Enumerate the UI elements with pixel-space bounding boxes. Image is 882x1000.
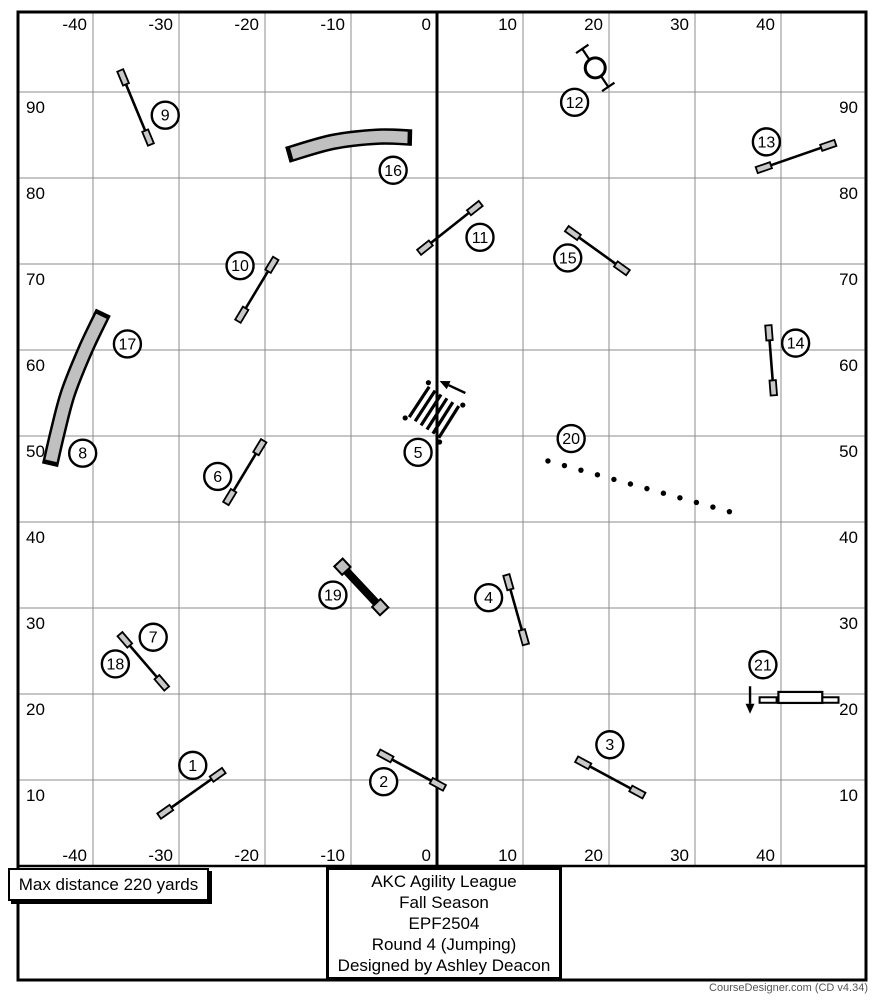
obstacle-number-text-15: 15 [559, 250, 577, 267]
obstacle-number-text-7: 7 [149, 630, 158, 647]
info-line-designer: Designed by Ashley Deacon [338, 955, 551, 976]
weave-pole [611, 477, 616, 482]
y-tick-right: 70 [839, 270, 858, 289]
obstacle-18-label-only: 18 [102, 650, 129, 677]
x-tick-top: -10 [320, 15, 345, 34]
obstacle-number-text-9: 9 [161, 108, 170, 125]
x-tick-bottom: 20 [584, 846, 603, 865]
x-tick-bottom: -20 [234, 846, 259, 865]
obstacle-17-tunnel: 17 [50, 312, 141, 465]
y-tick-left: 60 [26, 356, 45, 375]
obstacle-number-text-18: 18 [106, 656, 124, 673]
obstacle-1-jump: 1 [157, 752, 225, 819]
y-tick-left: 80 [26, 184, 45, 203]
x-tick-bottom: -40 [62, 846, 87, 865]
obstacle-number-text-10: 10 [231, 258, 249, 275]
obstacle-5-broad-jump: 5 [403, 380, 466, 466]
obstacle-number-text-5: 5 [414, 445, 423, 462]
x-tick-top: -20 [234, 15, 259, 34]
x-tick-bottom: 0 [422, 846, 431, 865]
panel-bar [342, 567, 380, 607]
weave-pole [710, 504, 715, 509]
obstacle-19-panel-jump: 19 [319, 559, 388, 616]
weave-pole [661, 491, 666, 496]
corner-pole [403, 415, 408, 420]
weave-pole [644, 486, 649, 491]
course-map: -40-40-30-30-20-20-10-100010102020303040… [0, 0, 882, 1000]
info-line-league: AKC Agility League [371, 871, 517, 892]
x-tick-bottom: 30 [670, 846, 689, 865]
tire-frame [582, 49, 589, 60]
jump-bar [508, 582, 523, 637]
spread-bar [778, 692, 822, 703]
x-tick-bottom: -10 [320, 846, 345, 865]
y-tick-right: 60 [839, 356, 858, 375]
max-distance-text: Max distance 220 yards [19, 875, 199, 895]
x-tick-bottom: 40 [756, 846, 775, 865]
y-tick-right: 80 [839, 184, 858, 203]
corner-pole [437, 439, 442, 444]
x-tick-top: 10 [498, 15, 517, 34]
obstacles: 123456789101112131415161718192021 [50, 45, 839, 819]
direction-arrow-head [746, 704, 755, 714]
x-tick-top: -40 [62, 15, 87, 34]
info-line-season: Fall Season [399, 892, 489, 913]
axis-lines [18, 12, 866, 980]
corner-pole [460, 402, 465, 407]
course-designer-page: -40-40-30-30-20-20-10-100010102020303040… [0, 0, 882, 1000]
y-tick-left: 10 [26, 786, 45, 805]
y-tick-left: 90 [26, 98, 45, 117]
obstacle-3-jump: 3 [575, 731, 645, 798]
weave-pole [628, 481, 633, 486]
tire-frame-foot [602, 83, 614, 91]
y-tick-right: 50 [839, 442, 858, 461]
tire-frame-foot [576, 45, 588, 53]
y-tick-right: 30 [839, 614, 858, 633]
weave-pole [694, 500, 699, 505]
jump-bar [123, 77, 148, 137]
direction-arrow [449, 385, 466, 393]
weave-pole [677, 495, 682, 500]
x-tick-top: 20 [584, 15, 603, 34]
x-tick-bottom: -30 [148, 846, 173, 865]
obstacle-6-jump: 6 [204, 439, 266, 505]
obstacle-number-text-1: 1 [188, 758, 197, 775]
info-line-code: EPF2504 [409, 913, 480, 934]
obstacle-number-text-2: 2 [379, 774, 388, 791]
y-tick-right: 10 [839, 786, 858, 805]
obstacle-number-text-3: 3 [605, 737, 614, 754]
weave-pole [578, 467, 583, 472]
obstacle-13-jump: 13 [753, 128, 837, 173]
y-tick-left: 30 [26, 614, 45, 633]
coursedesigner-credit: CourseDesigner.com (CD v4.34) [709, 982, 868, 994]
obstacle-11-jump: 11 [417, 201, 493, 255]
x-tick-top: -30 [148, 15, 173, 34]
obstacle-2-jump: 2 [370, 750, 446, 796]
y-tick-right: 20 [839, 700, 858, 719]
obstacle-number-text-21: 21 [754, 657, 772, 674]
x-tick-bottom: 10 [498, 846, 517, 865]
obstacle-number-text-20: 20 [562, 431, 580, 448]
y-tick-left: 70 [26, 270, 45, 289]
weave-pole [727, 509, 732, 514]
obstacle-number-text-19: 19 [324, 588, 342, 605]
obstacle-9-jump: 9 [117, 69, 178, 146]
obstacle-16-tunnel: 16 [287, 137, 412, 184]
x-tick-top: 30 [670, 15, 689, 34]
obstacle-number-text-14: 14 [787, 336, 805, 353]
course-info-box: AKC Agility League Fall Season EPF2504 R… [326, 867, 562, 980]
tire-ring [585, 58, 605, 78]
obstacle-number-text-13: 13 [757, 134, 775, 151]
obstacle-15-jump: 15 [554, 226, 630, 275]
obstacle-14-jump: 14 [765, 325, 809, 395]
jump-bar [230, 447, 260, 497]
obstacle-number-text-17: 17 [119, 336, 137, 353]
obstacle-10-jump: 10 [227, 252, 279, 323]
corner-pole [426, 380, 431, 385]
obstacle-4-jump: 4 [475, 574, 529, 645]
obstacle-number-text-8: 8 [78, 446, 87, 463]
obstacle-number-text-4: 4 [484, 590, 493, 607]
y-tick-right: 40 [839, 528, 858, 547]
obstacle-number-text-6: 6 [213, 469, 222, 486]
weave-pole [562, 463, 567, 468]
y-tick-left: 40 [26, 528, 45, 547]
x-tick-top: 40 [756, 15, 775, 34]
obstacle-number-text-16: 16 [384, 163, 402, 180]
obstacle-number-text-11: 11 [472, 230, 489, 247]
obstacle-21-spread-jump: 21 [746, 651, 839, 714]
obstacle-12-tire: 12 [561, 45, 614, 116]
weave-pole [545, 458, 550, 463]
y-tick-left: 50 [26, 442, 45, 461]
weave-pole [595, 472, 600, 477]
jump-bar [583, 763, 637, 792]
obstacle-8-label-only: 8 [69, 440, 96, 467]
info-line-round: Round 4 (Jumping) [372, 934, 517, 955]
y-tick-right: 90 [839, 98, 858, 117]
obstacle-20-weave: 20 [545, 425, 732, 514]
y-tick-left: 20 [26, 700, 45, 719]
map-border [18, 12, 866, 980]
max-distance-box: Max distance 220 yards [8, 868, 209, 901]
x-tick-top: 0 [422, 15, 431, 34]
tire-frame [601, 76, 608, 87]
obstacle-number-text-12: 12 [566, 95, 584, 112]
